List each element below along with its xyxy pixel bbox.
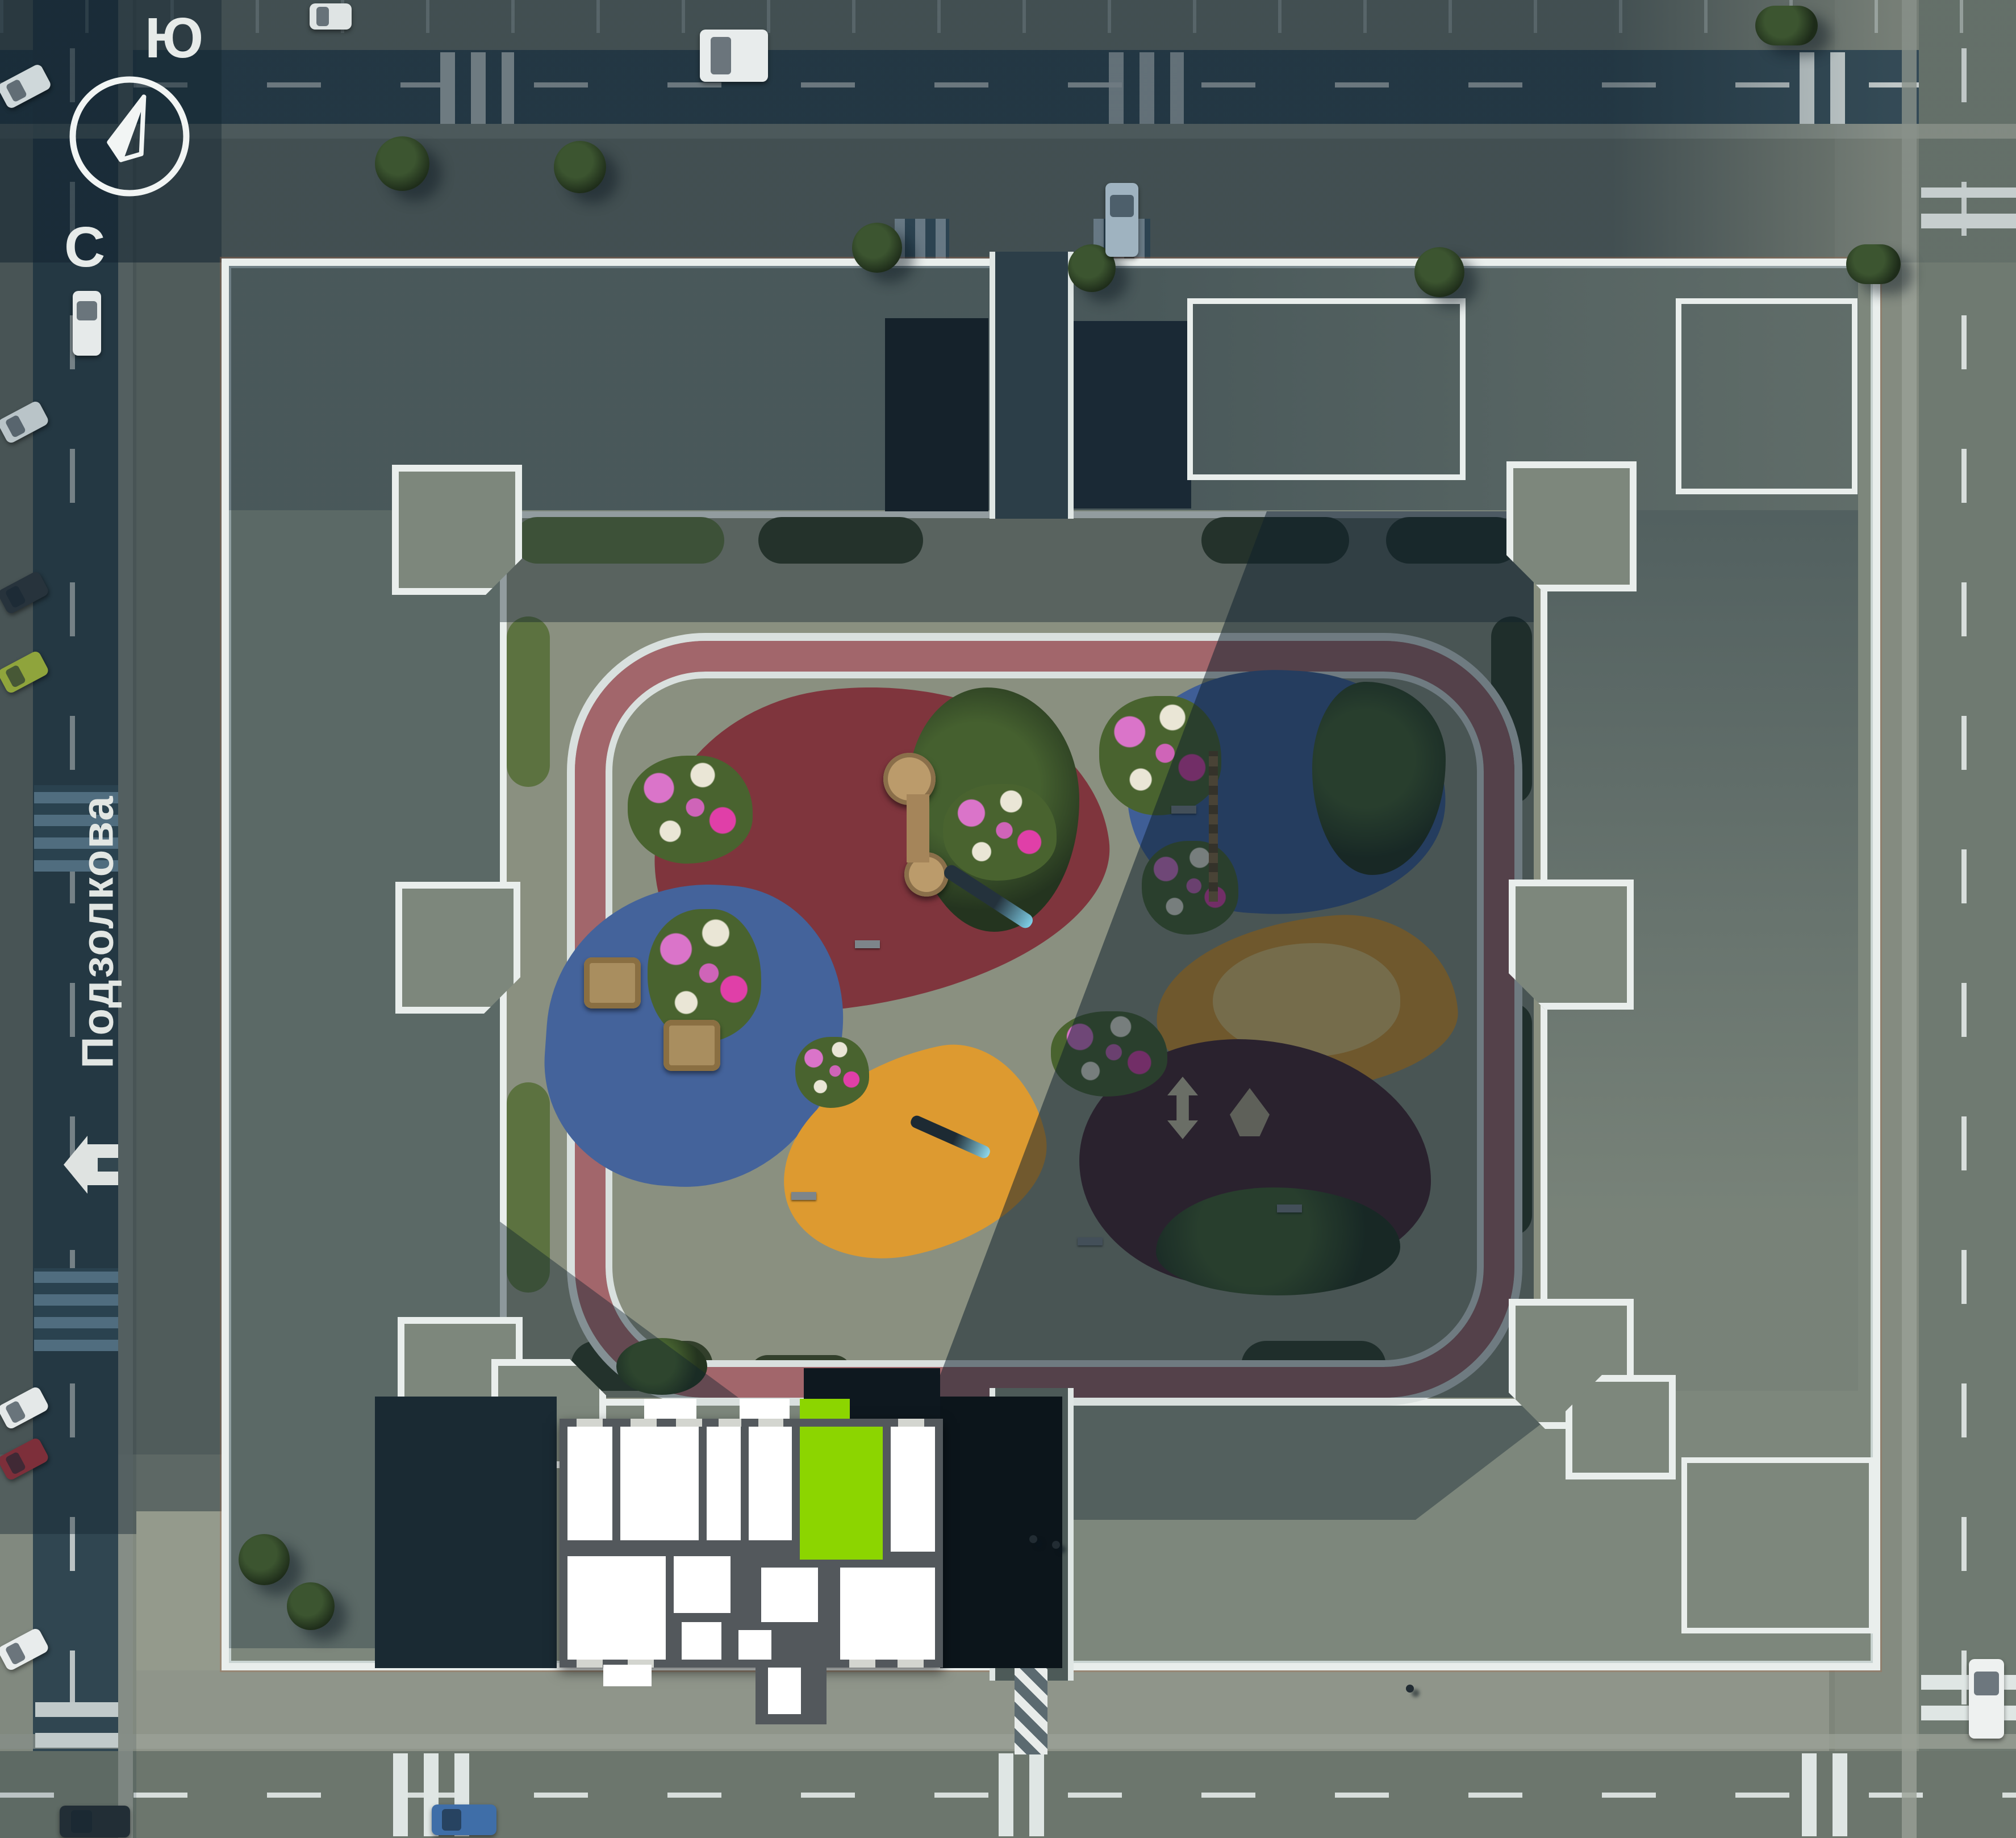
- roof-dark-volume: [940, 1397, 1062, 1668]
- passage-top: [990, 252, 1074, 519]
- home-icon: [57, 1131, 125, 1199]
- tree: [287, 1582, 335, 1630]
- tree: [1414, 247, 1464, 297]
- balcony-highlight[interactable]: [800, 1399, 850, 1419]
- tree: [852, 223, 902, 273]
- tree: [1755, 6, 1818, 45]
- room: [674, 1556, 731, 1613]
- grass-strip: [1201, 517, 1349, 564]
- balcony: [644, 1399, 696, 1419]
- grass-strip: [514, 517, 724, 564]
- window: [719, 1419, 741, 1427]
- car: [310, 3, 352, 30]
- crosswalk: [1802, 1753, 1851, 1836]
- room: [891, 1427, 935, 1552]
- parking-stalls-top: [0, 0, 2016, 33]
- tree: [375, 136, 429, 191]
- room: [840, 1568, 935, 1660]
- roof-dark-volume: [1069, 321, 1191, 509]
- shrub-bed: [616, 1338, 707, 1395]
- window: [898, 1419, 924, 1427]
- balcony: [603, 1665, 652, 1686]
- bench: [1078, 1237, 1103, 1245]
- tree: [239, 1534, 290, 1585]
- flower-bed: [795, 1037, 869, 1108]
- car: [60, 1806, 130, 1837]
- stair-core-room: [738, 1630, 771, 1660]
- driveway-apron: [34, 1268, 118, 1351]
- tower: [392, 465, 522, 595]
- roof-upper-volume: [1681, 1457, 1875, 1633]
- window: [577, 1660, 603, 1668]
- bench: [855, 940, 880, 948]
- sidewalk-top: [0, 124, 2016, 139]
- play-tower-bridge: [907, 794, 929, 862]
- car: [700, 30, 768, 82]
- window: [758, 1419, 783, 1427]
- crosswalk: [999, 1753, 1049, 1836]
- play-structure: [584, 957, 641, 1008]
- tower: [1509, 880, 1634, 1010]
- balcony: [740, 1399, 790, 1419]
- roof-dark-volume: [885, 318, 988, 511]
- pedestrian: [1052, 1541, 1060, 1549]
- window: [849, 1660, 875, 1668]
- room: [707, 1427, 741, 1540]
- room: [749, 1427, 792, 1540]
- road-top-centerline: [0, 82, 2016, 87]
- grass-strip: [1386, 517, 1520, 564]
- room: [567, 1427, 612, 1540]
- crosswalk: [35, 1691, 118, 1748]
- bench: [1171, 806, 1196, 814]
- floor-plan[interactable]: [560, 1419, 943, 1668]
- room: [567, 1556, 666, 1660]
- flower-bed: [628, 756, 753, 864]
- flower-bed: [1099, 696, 1221, 815]
- entry-lobby: [768, 1668, 801, 1714]
- bench: [1277, 1205, 1302, 1212]
- road-right: [1919, 0, 2016, 1838]
- window: [631, 1419, 657, 1427]
- roof-upper-volume: [1187, 298, 1466, 480]
- roof-dark-volume: [375, 1397, 557, 1668]
- road-right-centerline: [1961, 0, 1967, 1838]
- pedestrian: [1406, 1685, 1414, 1693]
- grass-strip: [507, 1082, 550, 1293]
- compass-label-north: С: [64, 215, 105, 280]
- tower: [1506, 461, 1637, 591]
- bench: [791, 1192, 816, 1200]
- sidewalk-bottom: [0, 1734, 2016, 1749]
- play-structure: [663, 1020, 720, 1071]
- crosswalk: [1800, 52, 1848, 124]
- flower-bed: [1142, 841, 1238, 935]
- apartment-highlight[interactable]: [800, 1427, 883, 1560]
- car: [1969, 1659, 2004, 1739]
- tower: [395, 882, 520, 1014]
- car: [73, 291, 101, 356]
- compass: Ю С: [54, 6, 224, 278]
- roof-upper-volume: [1676, 298, 1858, 494]
- tree: [1846, 244, 1901, 284]
- street-name: Подзолкова: [72, 795, 124, 1068]
- window: [898, 1660, 924, 1668]
- window: [676, 1419, 702, 1427]
- grass-strip: [758, 517, 923, 564]
- corridor: [761, 1568, 818, 1622]
- flower-bed: [1051, 1011, 1167, 1097]
- room: [620, 1427, 699, 1540]
- car: [432, 1804, 496, 1835]
- grass-strip: [507, 616, 550, 787]
- stair-core-room: [682, 1622, 721, 1660]
- sidewalk-right: [1902, 0, 1917, 1838]
- car: [1105, 183, 1138, 257]
- compass-label-south: Ю: [145, 6, 203, 71]
- window: [577, 1419, 603, 1427]
- tree: [554, 141, 606, 193]
- pedestrian: [1029, 1535, 1037, 1543]
- crosswalk: [1109, 52, 1184, 124]
- site-plan-scene: Ю С Подзолкова: [0, 0, 2016, 1838]
- pergola: [1209, 751, 1218, 902]
- flower-bed: [943, 784, 1057, 881]
- crosswalk: [440, 52, 514, 124]
- driveway-apron: [895, 219, 949, 264]
- crosswalk: [1921, 187, 2016, 228]
